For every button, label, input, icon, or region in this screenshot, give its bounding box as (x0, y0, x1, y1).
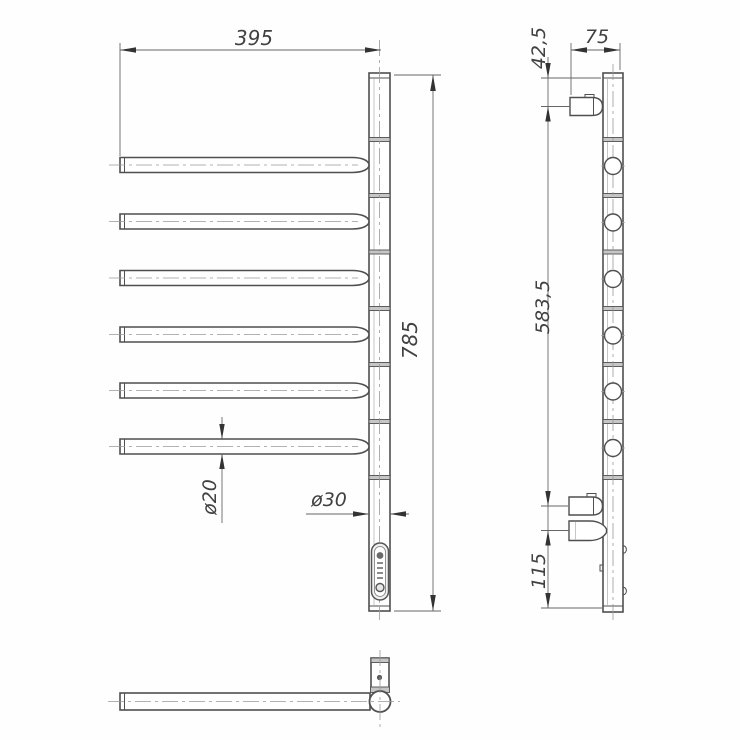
dim-top-width: 395 (120, 26, 381, 156)
front-arm-4 (109, 327, 369, 342)
dim-label-side-bottom-offset: 115 (528, 553, 550, 589)
drawing-canvas: 395 785 ø20 ø30 (0, 0, 740, 740)
dim-label-arm-diameter: ø20 (199, 479, 221, 516)
side-bracket-lower (569, 494, 603, 516)
side-view: 75 42,5 583,5 115 (528, 26, 626, 620)
drawing-sheet: 395 785 ø20 ø30 (0, 0, 740, 740)
front-view: 395 785 ø20 ø30 (109, 26, 441, 620)
dim-label-top-width: 395 (235, 26, 273, 50)
front-post (369, 40, 390, 620)
side-bracket-top (570, 95, 603, 116)
front-arm-2 (109, 214, 369, 229)
bottom-view (108, 650, 400, 727)
front-arm-1 (109, 158, 369, 173)
dim-arm-diameter: ø20 (199, 417, 225, 523)
dim-label-side-mount-span: 583,5 (532, 280, 554, 334)
front-arm-3 (109, 271, 369, 286)
side-left-lug (600, 565, 603, 571)
front-arm-6 (109, 439, 369, 454)
dim-label-side-depth: 75 (585, 26, 609, 48)
dim-post-diameter: ø30 (306, 489, 409, 517)
dim-overall-height: 785 (394, 75, 441, 611)
side-power-unit (569, 521, 607, 541)
dim-label-overall-height: 785 (398, 321, 422, 359)
front-arm-5 (109, 383, 369, 398)
front-arms (109, 158, 369, 455)
brand-badge-icon (372, 543, 389, 600)
dim-label-side-top-offset: 42,5 (528, 27, 550, 69)
bottom-screw-icon (377, 675, 382, 680)
dim-label-post-diameter: ø30 (310, 489, 347, 511)
